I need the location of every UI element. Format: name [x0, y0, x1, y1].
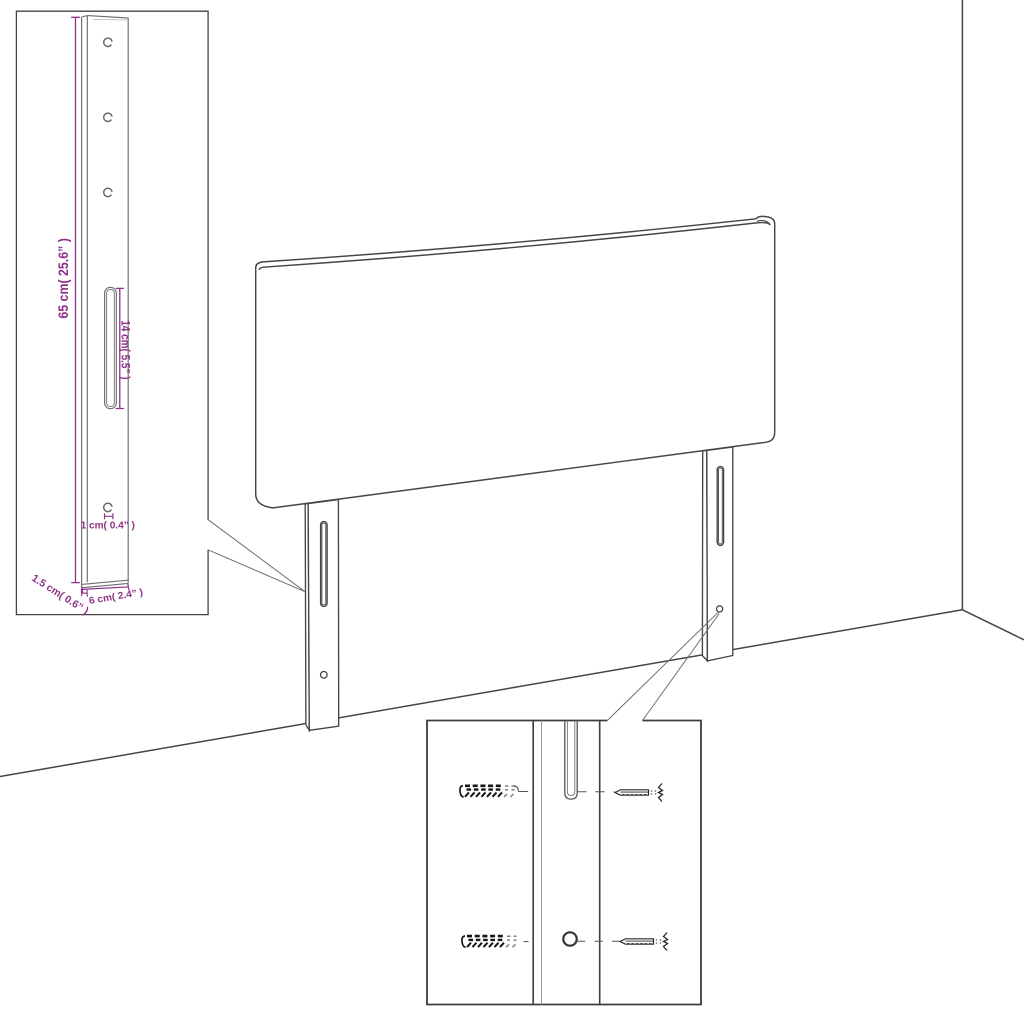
svg-text:14 cm( 5.5” ): 14 cm( 5.5” ) [118, 320, 132, 379]
svg-text:6 cm( 2.4” ): 6 cm( 2.4” ) [88, 587, 144, 607]
svg-text:65 cm( 25.6” ): 65 cm( 25.6” ) [56, 238, 71, 319]
svg-text:1 cm( 0.4” ): 1 cm( 0.4” ) [81, 521, 135, 532]
